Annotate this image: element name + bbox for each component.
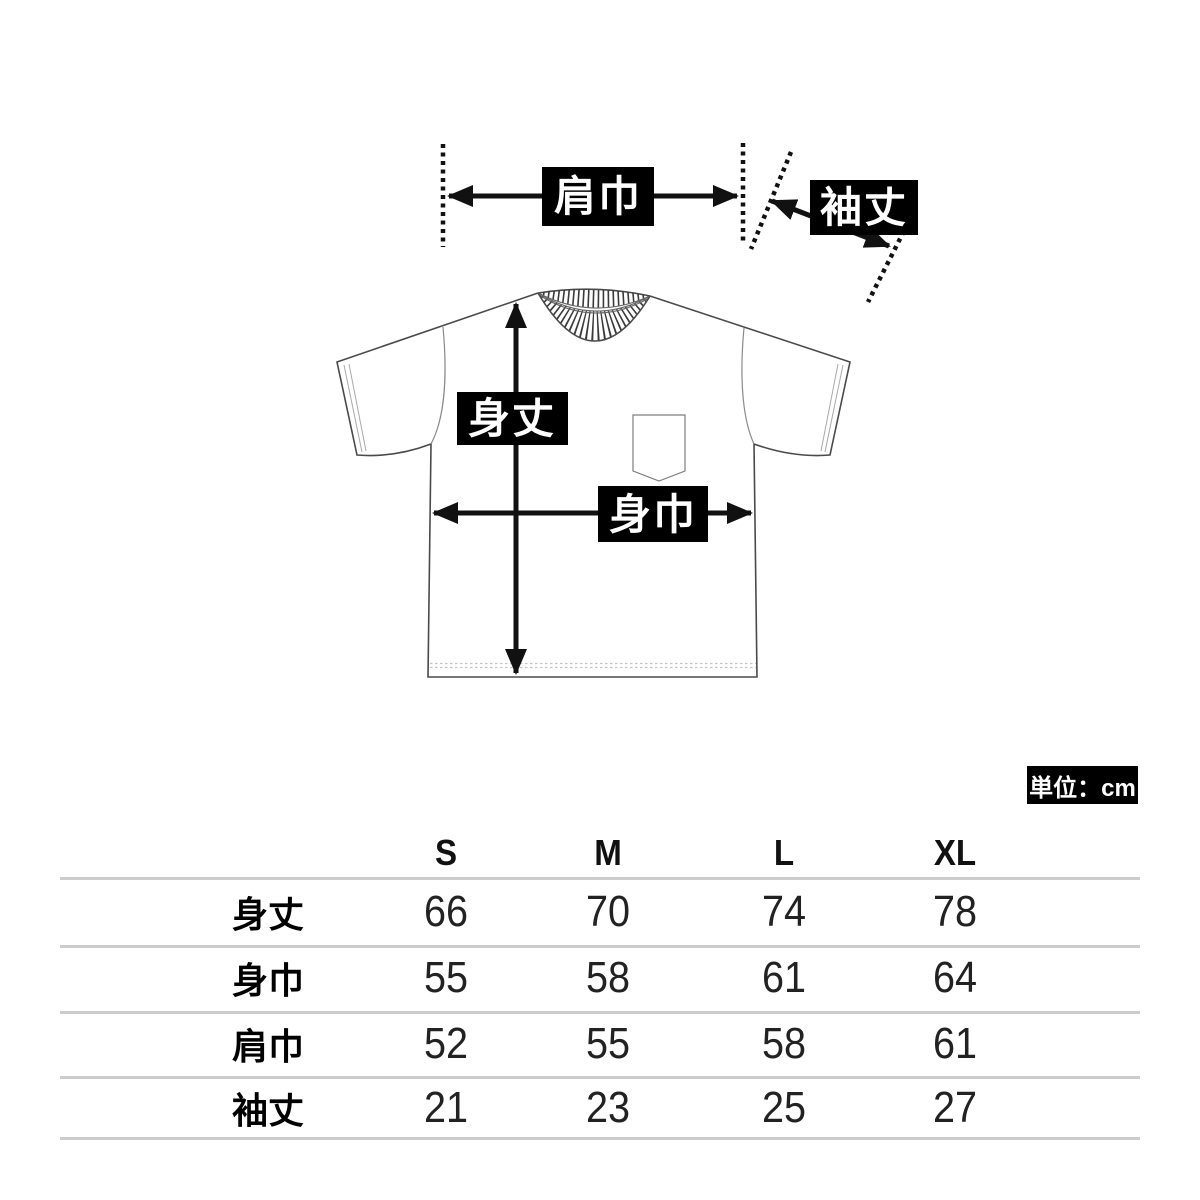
row-label-body-width: 身巾: [232, 952, 304, 1004]
table-cell: 23: [586, 1083, 630, 1133]
sleeve-top-guide: [751, 152, 791, 249]
chest-pocket: [633, 415, 685, 481]
table-cell: 52: [424, 1019, 468, 1069]
tshirt-measurement-diagram: 肩巾 袖丈 身丈 身巾: [0, 0, 1200, 760]
row-label-body-length: 身丈: [232, 886, 304, 938]
col-header-l: L: [774, 832, 794, 874]
sleeve-length-annotation: 袖丈: [751, 152, 918, 302]
table-cell: 55: [424, 953, 468, 1003]
table-cell: 66: [424, 887, 468, 937]
table-cell: 61: [762, 953, 806, 1003]
size-chart-page: 肩巾 袖丈 身丈 身巾 単位：cm S M L X: [0, 0, 1200, 1200]
table-cell: 70: [586, 887, 630, 937]
table-cell: 25: [762, 1083, 806, 1133]
table-cell: 61: [933, 1019, 977, 1069]
table-cell: 55: [586, 1019, 630, 1069]
table-cell: 27: [933, 1083, 977, 1133]
row-label-shoulder-width: 肩巾: [232, 1018, 304, 1070]
table-line: [60, 1137, 1140, 1140]
shoulder-width-label: 肩巾: [554, 173, 642, 220]
table-cell: 64: [933, 953, 977, 1003]
row-label-sleeve-length: 袖丈: [232, 1082, 304, 1134]
tshirt-drawing: [337, 289, 850, 677]
sleeve-length-label: 袖丈: [820, 184, 908, 231]
tshirt-body-outline: [337, 289, 850, 677]
col-header-xl: XL: [934, 832, 976, 874]
col-header-m: M: [594, 832, 622, 874]
table-line: [60, 877, 1140, 880]
body-width-label: 身巾: [609, 491, 697, 538]
shoulder-width-annotation: 肩巾: [443, 143, 743, 247]
table-line: [60, 945, 1140, 948]
table-cell: 58: [762, 1019, 806, 1069]
unit-badge: 単位：cm: [1027, 766, 1138, 804]
body-length-label: 身丈: [468, 395, 556, 442]
table-cell: 58: [586, 953, 630, 1003]
table-cell: 21: [424, 1083, 468, 1133]
table-cell: 74: [762, 887, 806, 937]
col-header-s: S: [435, 832, 457, 874]
table-cell: 78: [933, 887, 977, 937]
table-line: [60, 1011, 1140, 1014]
table-line: [60, 1076, 1140, 1079]
